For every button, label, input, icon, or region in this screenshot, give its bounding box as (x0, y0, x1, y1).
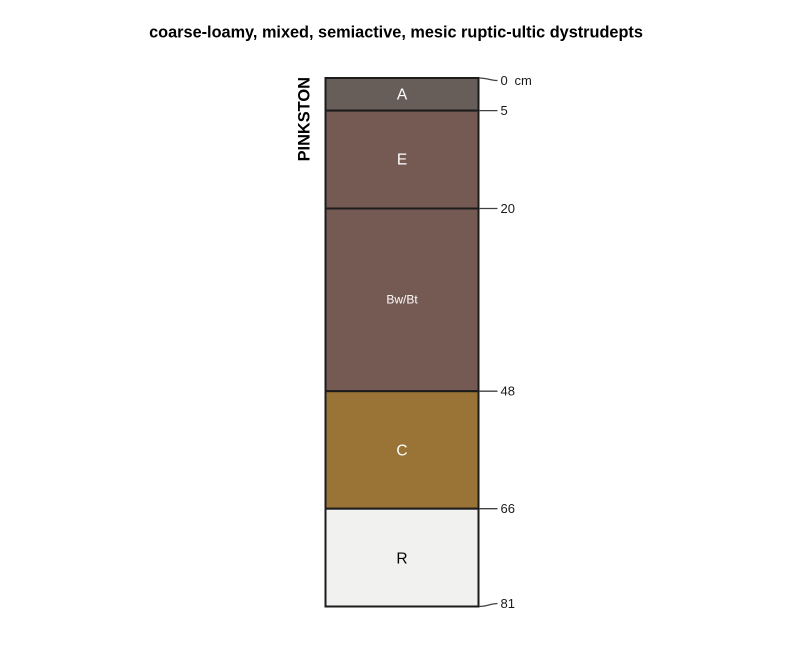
svg-text:Bw/Bt: Bw/Bt (386, 293, 418, 307)
svg-text:coarse-loamy, mixed, semiactiv: coarse-loamy, mixed, semiactive, mesic r… (149, 23, 643, 41)
svg-text:48: 48 (501, 384, 515, 399)
svg-text:0: 0 (501, 73, 508, 88)
svg-text:C: C (396, 443, 407, 460)
svg-text:cm: cm (515, 73, 532, 88)
svg-text:A: A (397, 87, 408, 104)
svg-text:5: 5 (501, 103, 508, 118)
svg-text:E: E (397, 152, 407, 169)
svg-text:20: 20 (501, 201, 515, 216)
svg-text:66: 66 (501, 501, 515, 516)
svg-text:R: R (396, 551, 407, 568)
svg-text:81: 81 (501, 596, 515, 611)
svg-text:PINKSTON: PINKSTON (296, 77, 314, 161)
